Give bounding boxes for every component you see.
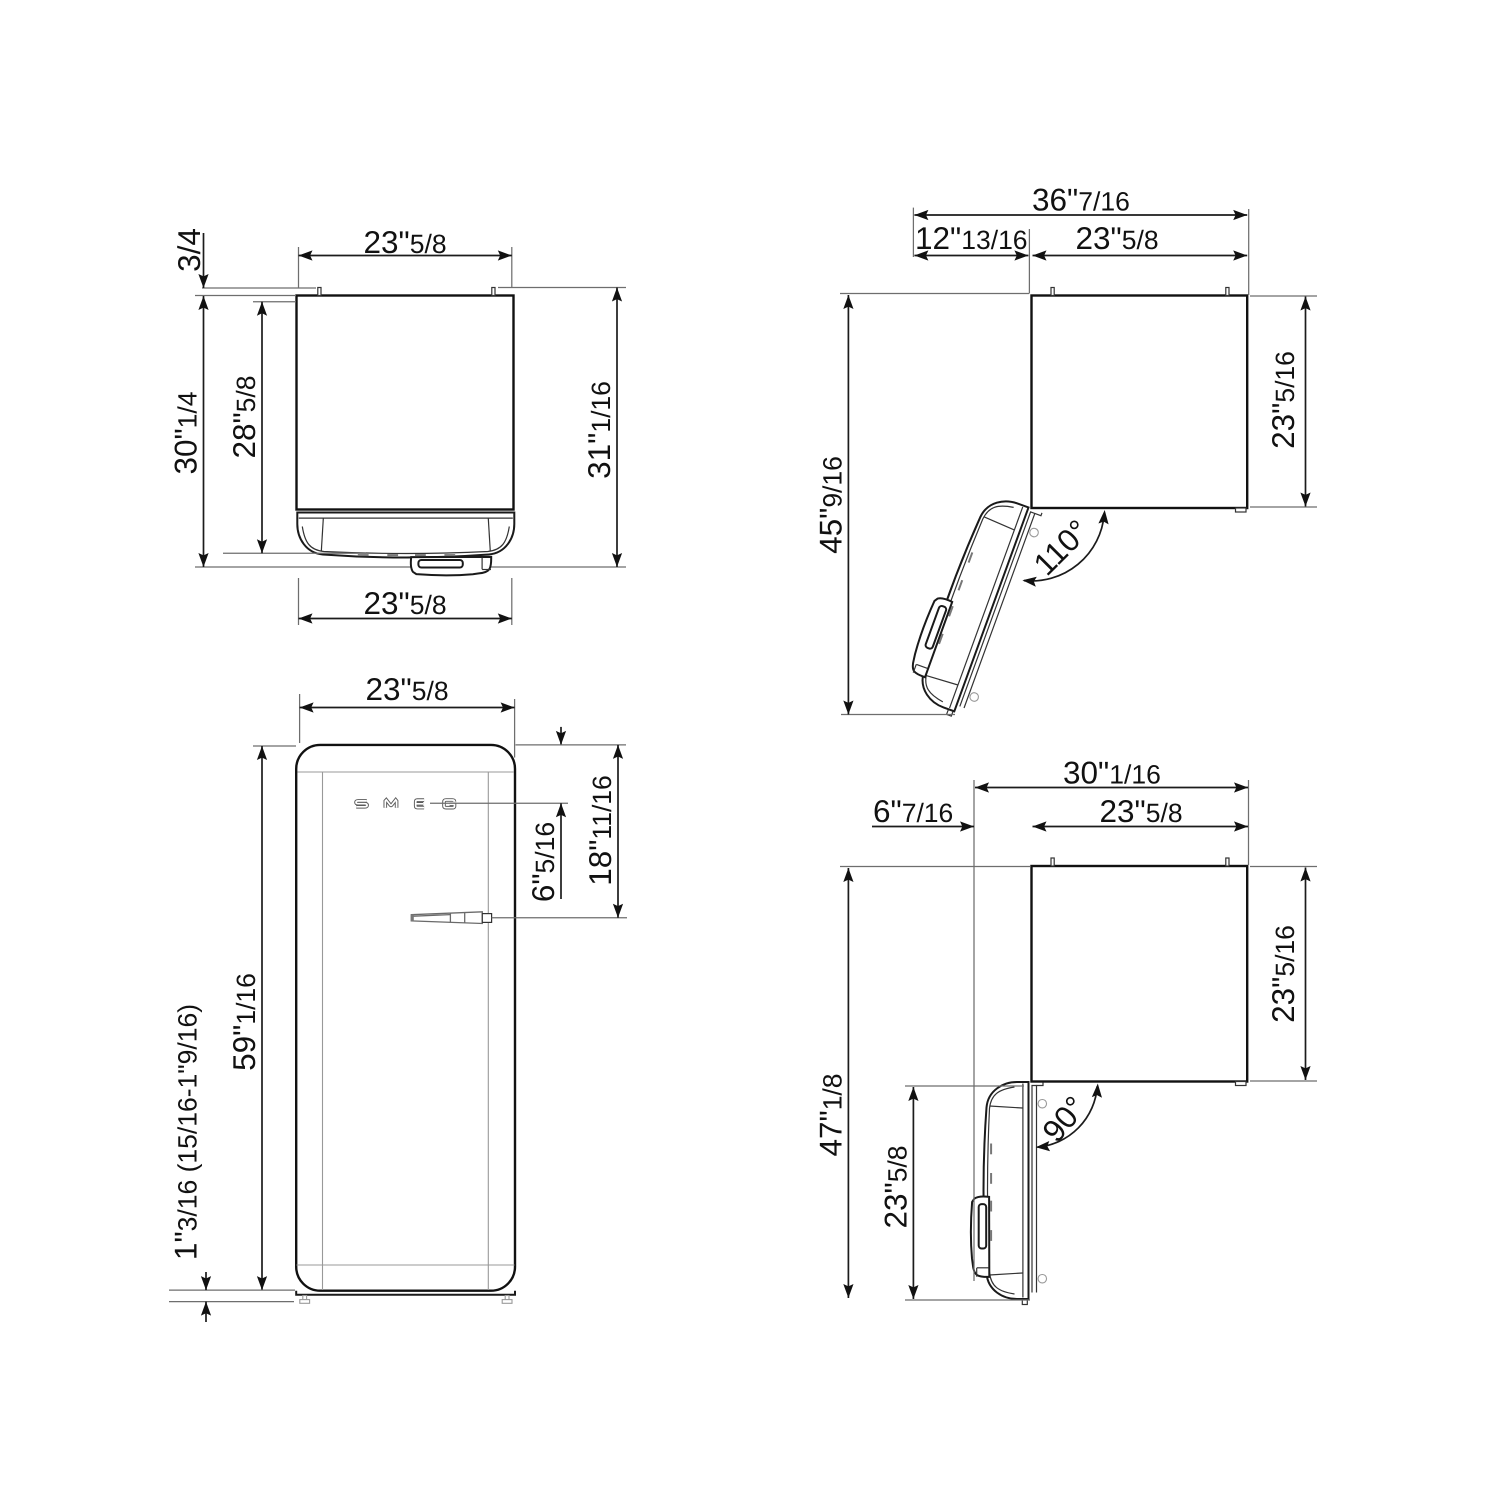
svg-text:23"5/8: 23"5/8 — [1076, 220, 1159, 256]
svg-text:30"1/16: 30"1/16 — [1063, 755, 1161, 791]
svg-text:36"7/16: 36"7/16 — [1032, 182, 1130, 218]
svg-text:23"5/16: 23"5/16 — [1265, 925, 1301, 1023]
svg-text:18"11/16: 18"11/16 — [582, 775, 618, 886]
svg-text:45"9/16: 45"9/16 — [812, 456, 848, 554]
svg-text:23"5/8: 23"5/8 — [1100, 793, 1183, 829]
svg-text:23"5/8: 23"5/8 — [366, 671, 449, 707]
svg-text:12"13/16: 12"13/16 — [915, 220, 1028, 256]
svg-text:23"5/8: 23"5/8 — [364, 224, 447, 260]
svg-text:6"7/16: 6"7/16 — [873, 793, 953, 829]
svg-text:23"5/8: 23"5/8 — [364, 585, 447, 621]
svg-text:23"5/16: 23"5/16 — [1265, 351, 1301, 449]
svg-text:31"1/16: 31"1/16 — [581, 381, 617, 479]
svg-text:30"1/4: 30"1/4 — [168, 391, 204, 474]
svg-text:3/4: 3/4 — [171, 228, 207, 272]
svg-text:23"5/8: 23"5/8 — [877, 1145, 913, 1228]
svg-text:47"1/8: 47"1/8 — [812, 1073, 848, 1156]
svg-text:28"5/8: 28"5/8 — [226, 375, 262, 458]
svg-text:59"1/16: 59"1/16 — [226, 973, 262, 1071]
svg-text:1"3/16 (15/16-1"9/16): 1"3/16 (15/16-1"9/16) — [168, 1004, 204, 1260]
svg-text:6"5/16: 6"5/16 — [525, 822, 561, 902]
